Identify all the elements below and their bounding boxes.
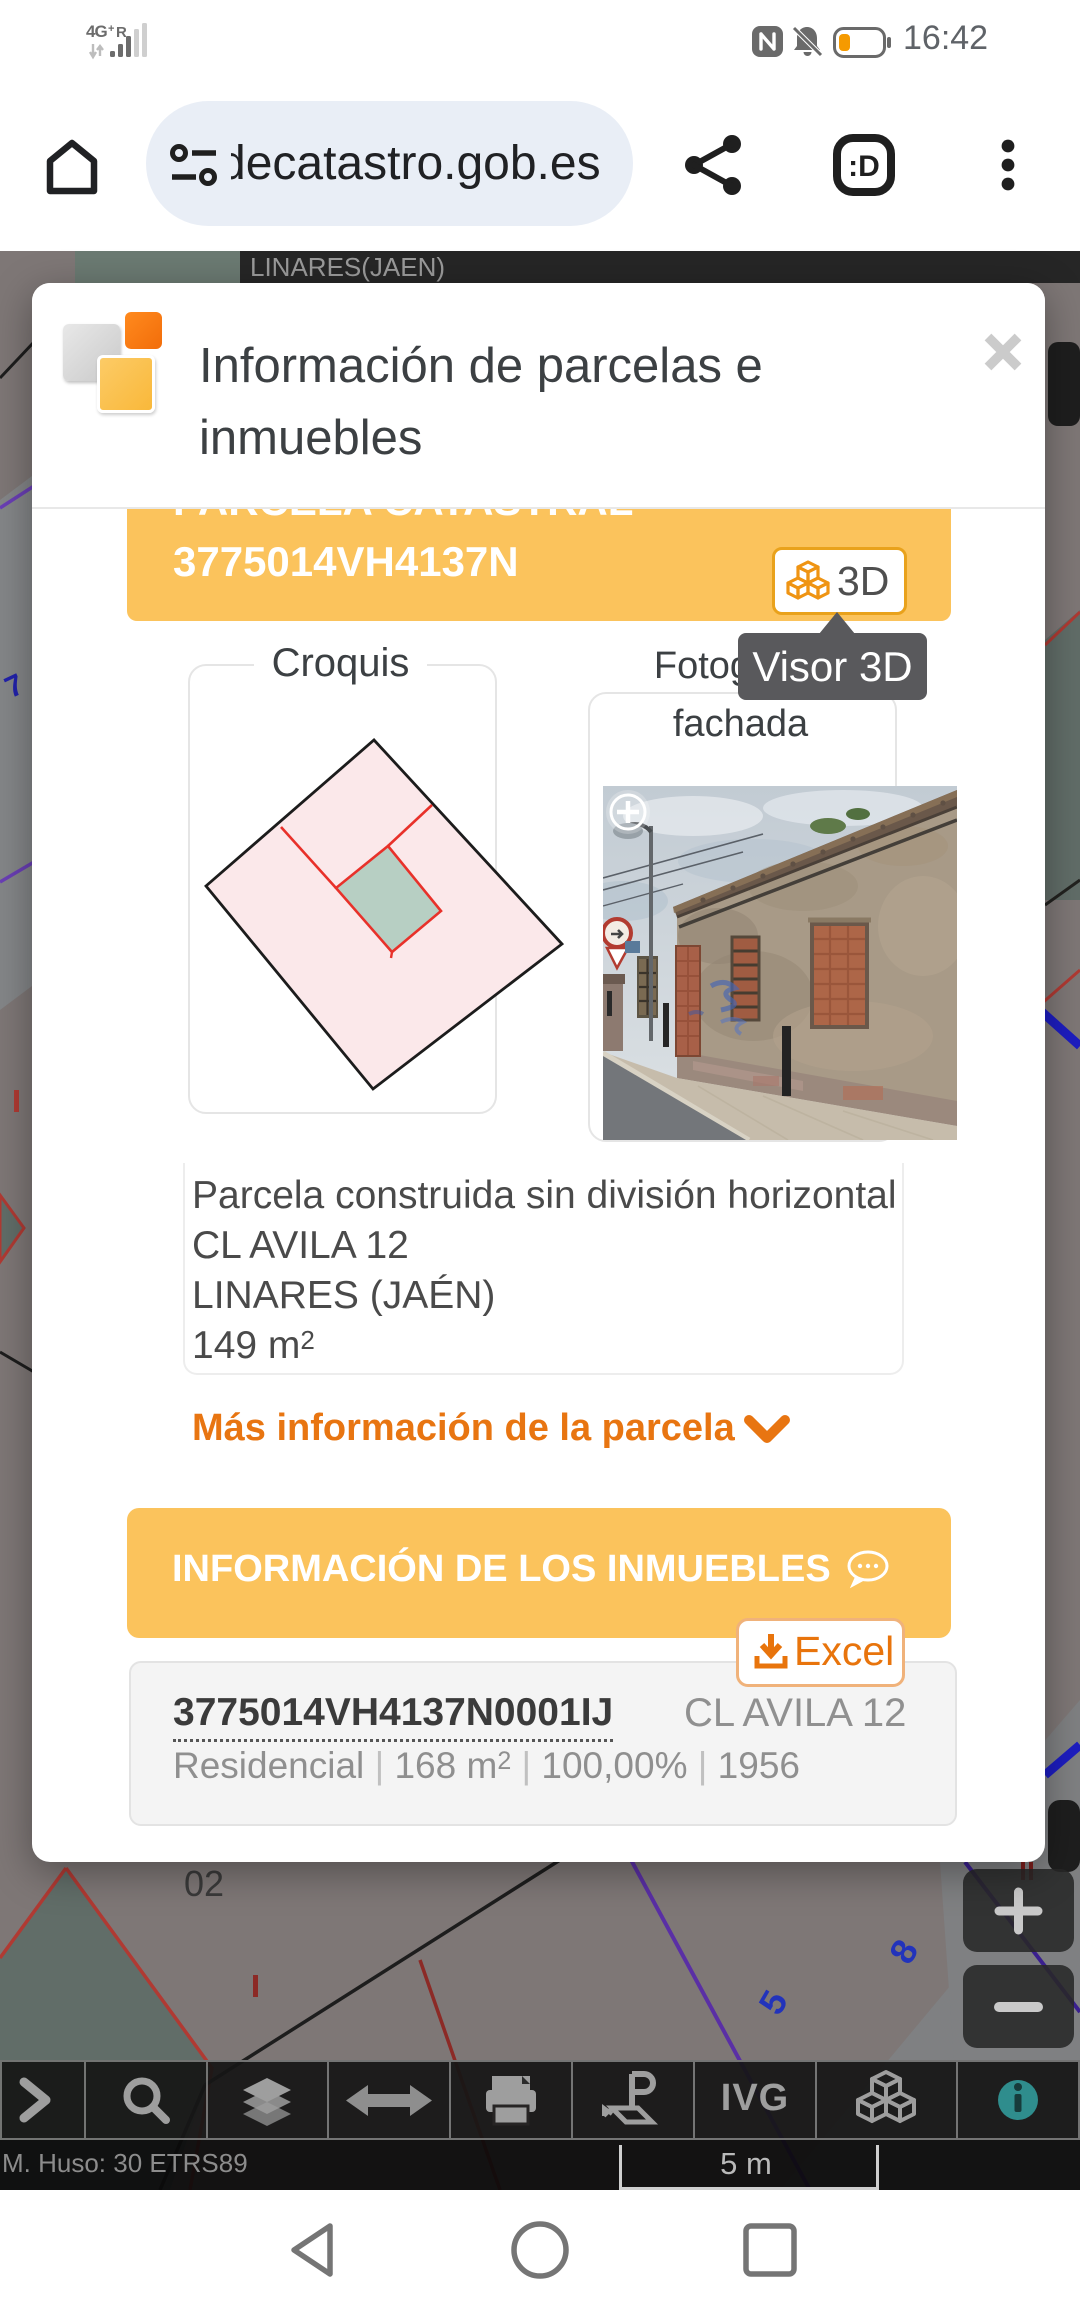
svg-text:R: R <box>116 24 127 41</box>
svg-text:02: 02 <box>184 1863 224 1904</box>
svg-text:4G: 4G <box>86 22 107 41</box>
svg-text:IVG: IVG <box>721 2077 789 2119</box>
svg-text:+: + <box>108 23 114 35</box>
svg-text::D: :D <box>848 150 880 183</box>
